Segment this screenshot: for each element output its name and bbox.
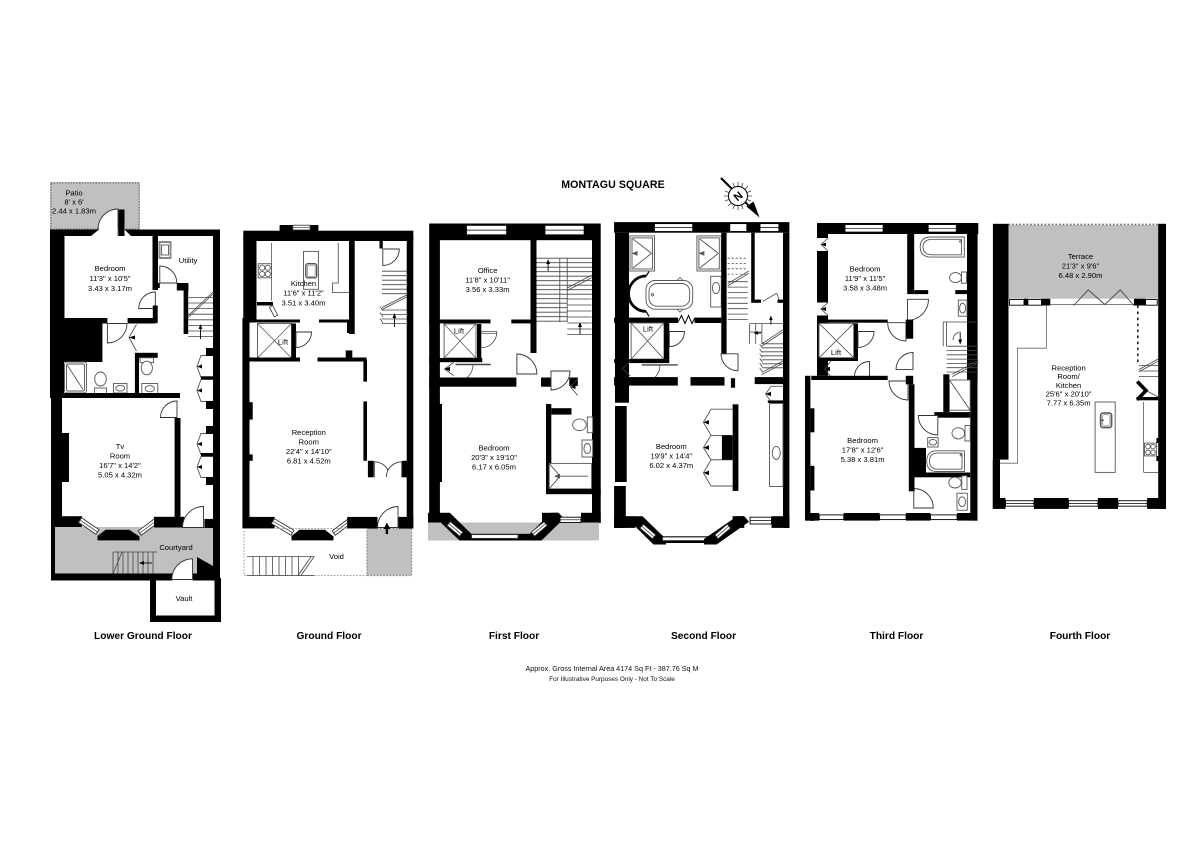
svg-text:Lift: Lift <box>831 348 842 357</box>
svg-text:Room/: Room/ <box>1057 372 1080 381</box>
svg-text:Ground Floor: Ground Floor <box>296 631 361 642</box>
svg-text:Utility: Utility <box>179 256 198 265</box>
svg-text:6.17 x 6.05m: 6.17 x 6.05m <box>472 462 516 471</box>
svg-text:8' x 6': 8' x 6' <box>64 198 84 207</box>
svg-text:6.48 x 2.90m: 6.48 x 2.90m <box>1059 271 1103 280</box>
svg-text:22'4" x 14'10": 22'4" x 14'10" <box>286 447 332 456</box>
svg-text:Second Floor: Second Floor <box>671 631 736 642</box>
svg-text:Kitchen: Kitchen <box>291 279 316 288</box>
svg-text:For Illustrative Purposes Only: For Illustrative Purposes Only - Not To … <box>549 676 675 683</box>
svg-text:Tv: Tv <box>116 442 125 451</box>
svg-text:16'7" x 14'2": 16'7" x 14'2" <box>99 461 141 470</box>
svg-text:11'6" x 11'2": 11'6" x 11'2" <box>283 289 324 298</box>
svg-text:Lift: Lift <box>278 338 289 347</box>
svg-text:Lift: Lift <box>454 327 465 336</box>
svg-text:2.44 x 1.83m: 2.44 x 1.83m <box>52 207 96 216</box>
svg-text:7.77 x 6.35m: 7.77 x 6.35m <box>1047 398 1091 407</box>
svg-text:Terrace: Terrace <box>1068 252 1093 261</box>
svg-text:Vault: Vault <box>176 594 194 603</box>
svg-text:17'8" x 12'6": 17'8" x 12'6" <box>842 446 884 455</box>
svg-text:Lower Ground Floor: Lower Ground Floor <box>94 631 192 642</box>
svg-text:11'3" x 10'5": 11'3" x 10'5" <box>89 274 130 283</box>
svg-text:19'9" x 14'4": 19'9" x 14'4" <box>650 452 692 461</box>
svg-text:Office: Office <box>478 266 498 275</box>
svg-text:Reception: Reception <box>1051 364 1085 373</box>
svg-text:Courtyard: Courtyard <box>159 543 192 552</box>
svg-text:Room: Room <box>110 452 130 461</box>
svg-text:20'3" x 19'10": 20'3" x 19'10" <box>471 453 517 462</box>
svg-text:Approx. Gross Internal Area 41: Approx. Gross Internal Area 4174 Sq Ft -… <box>526 664 699 673</box>
svg-text:6.81 x 4.52m: 6.81 x 4.52m <box>287 457 331 466</box>
svg-text:Bedroom: Bedroom <box>479 443 510 452</box>
svg-text:Bedroom: Bedroom <box>656 442 687 451</box>
svg-text:6.02 x 4.37m: 6.02 x 4.37m <box>649 461 693 470</box>
svg-text:Kitchen: Kitchen <box>1056 381 1081 390</box>
svg-text:Bedroom: Bedroom <box>95 264 126 273</box>
svg-text:Reception: Reception <box>292 428 326 437</box>
svg-text:Third Floor: Third Floor <box>870 631 924 642</box>
svg-text:11'8" x 10'11": 11'8" x 10'11" <box>465 276 510 285</box>
svg-text:3.56 x 3.33m: 3.56 x 3.33m <box>466 285 510 294</box>
svg-text:MONTAGU SQUARE: MONTAGU SQUARE <box>561 179 665 191</box>
svg-text:Fourth Floor: Fourth Floor <box>1050 631 1111 642</box>
svg-text:Room: Room <box>299 438 319 447</box>
svg-text:3.51 x 3.40m: 3.51 x 3.40m <box>282 298 326 307</box>
svg-text:Patio: Patio <box>65 189 82 198</box>
svg-text:3.58 x 3.48m: 3.58 x 3.48m <box>843 284 887 293</box>
svg-text:Lift: Lift <box>643 325 654 334</box>
svg-text:5.38 x 3.81m: 5.38 x 3.81m <box>841 455 885 464</box>
svg-text:21'3" x 9'6": 21'3" x 9'6" <box>1062 261 1100 270</box>
svg-text:Bedroom: Bedroom <box>850 265 881 274</box>
svg-text:5.05 x 4.32m: 5.05 x 4.32m <box>98 471 142 480</box>
svg-text:Void: Void <box>329 552 344 561</box>
svg-text:First Floor: First Floor <box>489 631 539 642</box>
svg-text:11'9" x 11'5": 11'9" x 11'5" <box>845 274 886 283</box>
svg-text:25'6" x 20'10": 25'6" x 20'10" <box>1046 390 1092 399</box>
svg-text:3.43 x 3.17m: 3.43 x 3.17m <box>88 284 132 293</box>
svg-text:Bedroom: Bedroom <box>847 436 878 445</box>
